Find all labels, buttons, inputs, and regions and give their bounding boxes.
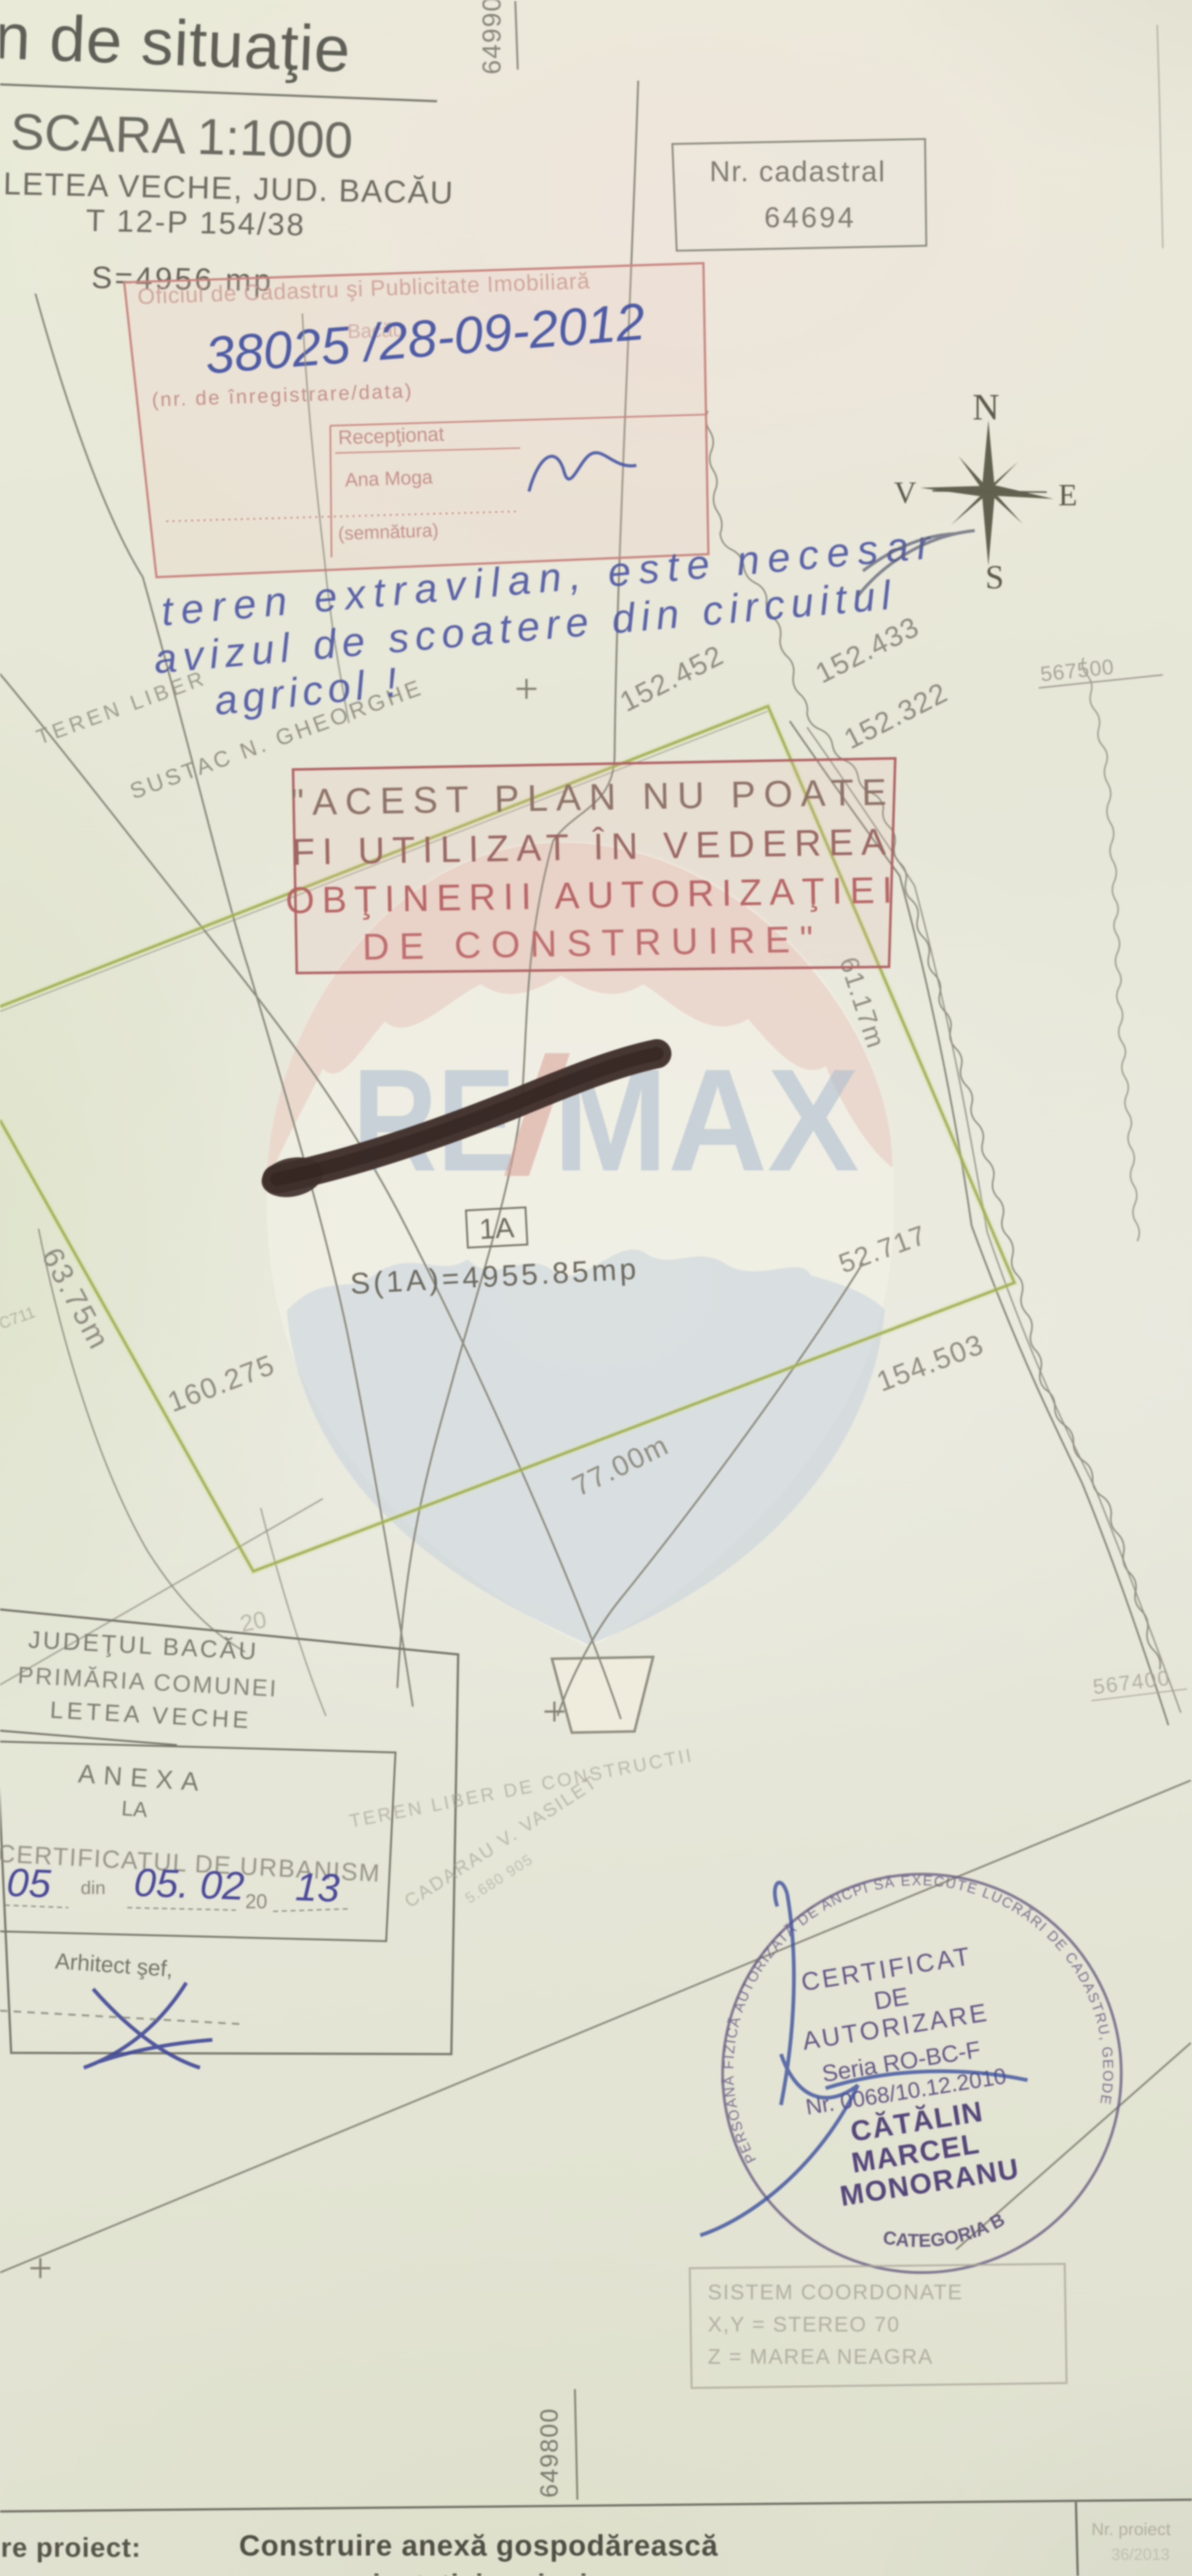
svg-text:13: 13 — [295, 1864, 341, 1910]
svg-text:DE CONSTRUIRE": DE CONSTRUIRE" — [362, 918, 823, 968]
svg-text:din: din — [81, 1878, 106, 1898]
svg-text:a exploataţiei agricole: a exploataţiei agricole — [298, 2569, 604, 2576]
svg-text:(semnătura): (semnătura) — [338, 520, 439, 544]
svg-text:SCARA 1:1000: SCARA 1:1000 — [10, 104, 354, 169]
svg-text:C711: C711 — [0, 1303, 38, 1333]
svg-text:05. 02: 05. 02 — [133, 1860, 245, 1908]
svg-text:Ana Moga: Ana Moga — [345, 466, 433, 491]
svg-text:152.452: 152.452 — [615, 639, 729, 718]
svg-text:SISTEM COORDONATE: SISTEM COORDONATE — [708, 2281, 963, 2304]
svg-text:E: E — [1059, 477, 1078, 512]
svg-text:N: N — [972, 387, 999, 428]
svg-text:1A: 1A — [479, 1211, 515, 1245]
svg-text:CATEGORIA B: CATEGORIA B — [878, 2208, 1010, 2259]
svg-text:LA: LA — [120, 1797, 148, 1822]
svg-text:LETEA VECHE: LETEA VECHE — [50, 1697, 253, 1734]
svg-text:PRIMĂRIA COMUNEI: PRIMĂRIA COMUNEI — [17, 1662, 279, 1702]
svg-text:LETEA VECHE, JUD. BACĂU: LETEA VECHE, JUD. BACĂU — [3, 166, 454, 210]
svg-text:V: V — [894, 475, 916, 509]
svg-text:649900: 649900 — [477, 0, 506, 74]
svg-text:154.503: 154.503 — [872, 1327, 988, 1398]
svg-text:Recepţionat: Recepţionat — [338, 423, 445, 449]
svg-text:Z = MAREA NEAGRA: Z = MAREA NEAGRA — [708, 2345, 934, 2369]
svg-text:n de situaţie: n de situaţie — [0, 1, 352, 86]
svg-text:Arhitect şef,: Arhitect şef, — [54, 1948, 173, 1981]
svg-text:36/2013: 36/2013 — [1111, 2545, 1170, 2564]
svg-text:649800: 649800 — [536, 2408, 563, 2498]
svg-text:ire proiect:: ire proiect: — [0, 2533, 141, 2563]
svg-text:Nr. proiect: Nr. proiect — [1091, 2520, 1171, 2539]
svg-text:S: S — [985, 559, 1004, 596]
svg-text:ANEXA: ANEXA — [77, 1759, 207, 1797]
svg-text:X,Y = STEREO 70: X,Y = STEREO 70 — [708, 2313, 900, 2336]
svg-text:152.322: 152.322 — [839, 676, 953, 755]
svg-text:Construire anexă gospodărească: Construire anexă gospodărească — [239, 2529, 718, 2562]
svg-text:20: 20 — [245, 1890, 268, 1913]
svg-text:64694: 64694 — [764, 201, 856, 233]
svg-text:T 12-P 154/38: T 12-P 154/38 — [86, 203, 306, 242]
svg-text:05: 05 — [6, 1860, 52, 1906]
svg-text:567400: 567400 — [1091, 1666, 1172, 1699]
svg-text:Nr. cadastral: Nr. cadastral — [710, 155, 886, 187]
svg-text:160.275: 160.275 — [163, 1348, 279, 1418]
